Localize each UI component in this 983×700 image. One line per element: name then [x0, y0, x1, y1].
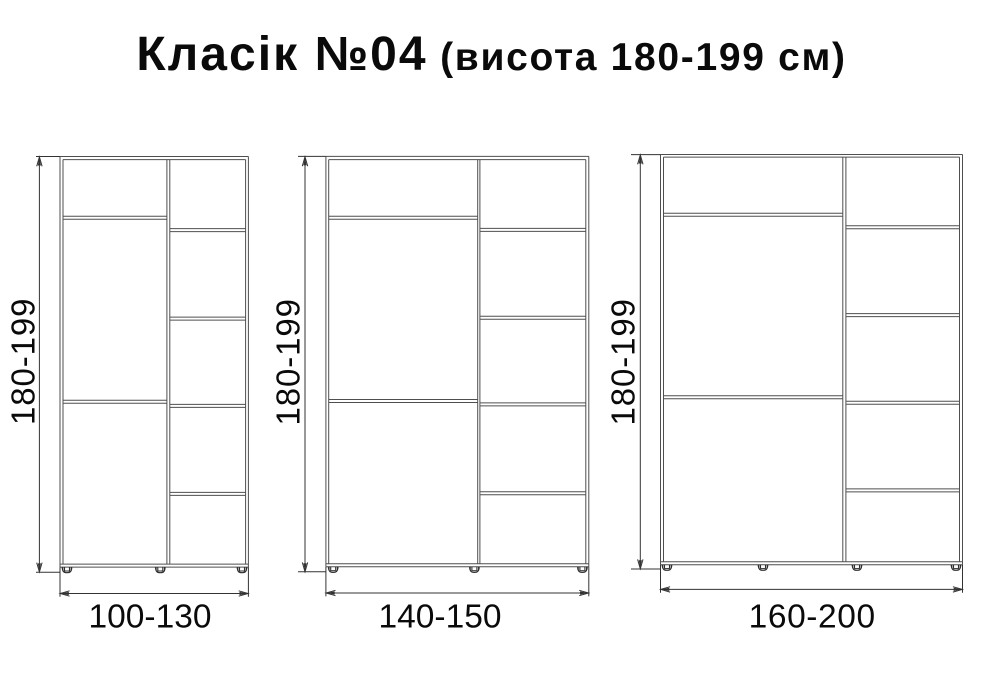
svg-text:100-130: 100-130: [89, 599, 212, 636]
svg-text:180-199: 180-199: [605, 298, 642, 425]
svg-text:180-199: 180-199: [5, 298, 42, 425]
svg-text:Класік №04 (висота 180-199 см): Класік №04 (висота 180-199 см): [136, 28, 846, 81]
svg-text:160-200: 160-200: [749, 598, 876, 635]
svg-text:180-199: 180-199: [270, 298, 307, 425]
svg-text:140-150: 140-150: [379, 599, 502, 636]
